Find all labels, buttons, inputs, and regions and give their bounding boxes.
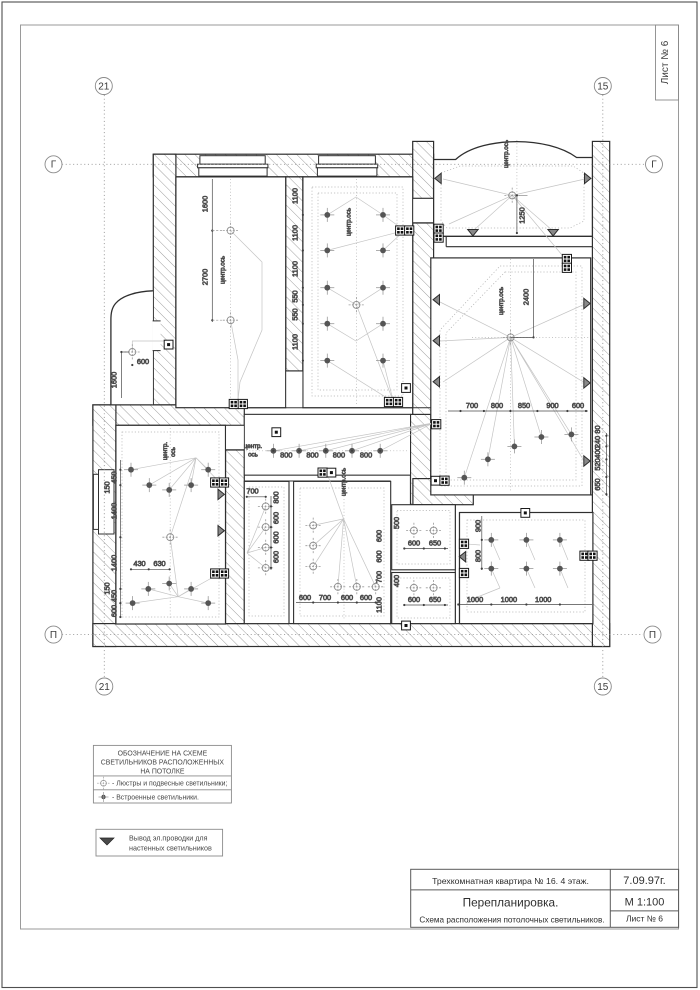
svg-text:1000: 1000 [467,595,483,604]
svg-text:1100: 1100 [291,261,300,277]
svg-text:800: 800 [474,550,483,562]
svg-text:850: 850 [518,401,530,410]
svg-text:600: 600 [360,593,372,602]
svg-text:550: 550 [291,290,300,302]
svg-text:800: 800 [491,401,503,410]
svg-text:Трехкомнатная квартира № 16. 4: Трехкомнатная квартира № 16. 4 этаж. [432,876,589,886]
svg-text:15: 15 [597,682,609,693]
svg-text:1100: 1100 [291,334,300,350]
svg-text:500: 500 [392,517,401,529]
svg-text:600: 600 [299,593,311,602]
svg-text:Вывод эл.проводки для: Вывод эл.проводки для [129,834,208,843]
svg-text:СВЕТИЛЬНИКОВ РАСПОЛОЖЕННЫХ: СВЕТИЛЬНИКОВ РАСПОЛОЖЕННЫХ [101,760,225,767]
svg-text:центр.: центр. [162,442,169,461]
svg-text:520: 520 [593,458,602,470]
svg-text:21: 21 [98,81,110,92]
svg-text:1400: 1400 [110,555,119,571]
svg-text:ОБОЗНАЧЕНИЕ НА СХЕМЕ: ОБОЗНАЧЕНИЕ НА СХЕМЕ [118,751,208,758]
svg-text:450: 450 [110,590,119,602]
svg-text:Г: Г [51,160,57,171]
svg-text:1000: 1000 [535,595,551,604]
svg-text:240: 240 [593,436,602,448]
svg-text:600: 600 [272,551,281,563]
svg-text:- Люстры и подвесные светильни: - Люстры и подвесные светильники; [112,781,228,788]
svg-text:900: 900 [474,520,483,532]
svg-text:600: 600 [341,593,353,602]
svg-text:600: 600 [272,512,281,524]
svg-text:700: 700 [466,401,478,410]
svg-text:ось: ось [170,447,177,457]
svg-text:600: 600 [375,550,384,562]
svg-text:800: 800 [280,451,292,460]
svg-text:2700: 2700 [201,269,210,285]
svg-text:П: П [649,630,656,641]
svg-text:80: 80 [593,425,602,433]
svg-text:центр.ось: центр.ось [220,256,227,284]
svg-text:400: 400 [392,575,401,587]
svg-text:600: 600 [375,530,384,542]
svg-text:800: 800 [272,491,281,503]
svg-text:630: 630 [153,559,165,568]
svg-text:800: 800 [333,451,345,460]
svg-text:700: 700 [319,593,331,602]
svg-text:700: 700 [375,571,384,583]
svg-text:600: 600 [408,595,420,604]
svg-text:600: 600 [137,357,149,366]
svg-text:ось: ось [248,452,258,459]
svg-text:Лист № 6: Лист № 6 [660,40,671,84]
svg-text:600: 600 [272,531,281,543]
svg-text:Схема расположения потолочных: Схема расположения потолочных светильник… [419,916,604,925]
svg-text:7.09.97г.: 7.09.97г. [623,875,665,887]
svg-text:- Встроенные светильники.: - Встроенные светильники. [112,795,199,802]
svg-text:1600: 1600 [110,372,119,388]
svg-text:650: 650 [429,595,441,604]
svg-text:600: 600 [572,401,584,410]
svg-text:900: 900 [546,401,558,410]
svg-text:1250: 1250 [518,207,527,223]
svg-text:1600: 1600 [201,196,210,212]
svg-text:центр.ось: центр.ось [341,468,348,496]
svg-text:2400: 2400 [522,289,531,305]
svg-text:1100: 1100 [375,597,384,613]
svg-text:1000: 1000 [501,595,517,604]
svg-text:настенных светильников: настенных светильников [129,844,212,853]
svg-text:Перепланировка.: Перепланировка. [463,896,559,910]
svg-text:15: 15 [597,81,609,92]
svg-text:М 1:100: М 1:100 [625,897,665,909]
svg-text:1100: 1100 [291,225,300,241]
svg-text:Г: Г [651,160,657,171]
svg-text:650: 650 [429,539,441,548]
svg-text:700: 700 [246,487,258,496]
svg-text:800: 800 [360,451,372,460]
svg-text:1400: 1400 [110,503,119,519]
svg-text:400: 400 [593,446,602,458]
svg-text:650: 650 [593,478,602,490]
svg-text:550: 550 [291,308,300,320]
svg-text:600: 600 [408,539,420,548]
svg-text:600: 600 [110,605,119,617]
svg-text:центр.ось: центр.ось [346,208,353,236]
svg-text:Лист № 6: Лист № 6 [626,914,663,924]
svg-text:21: 21 [99,682,111,693]
svg-text:центр.ось: центр.ось [503,140,510,168]
svg-text:центр.: центр. [244,443,263,450]
svg-text:НА ПОТОЛКЕ: НА ПОТОЛКЕ [140,769,185,776]
svg-text:центр.ось: центр.ось [498,287,505,315]
svg-text:800: 800 [306,451,318,460]
svg-text:1100: 1100 [291,188,300,204]
svg-text:430: 430 [133,559,145,568]
svg-text:П: П [50,630,57,641]
svg-text:150: 150 [103,481,112,493]
